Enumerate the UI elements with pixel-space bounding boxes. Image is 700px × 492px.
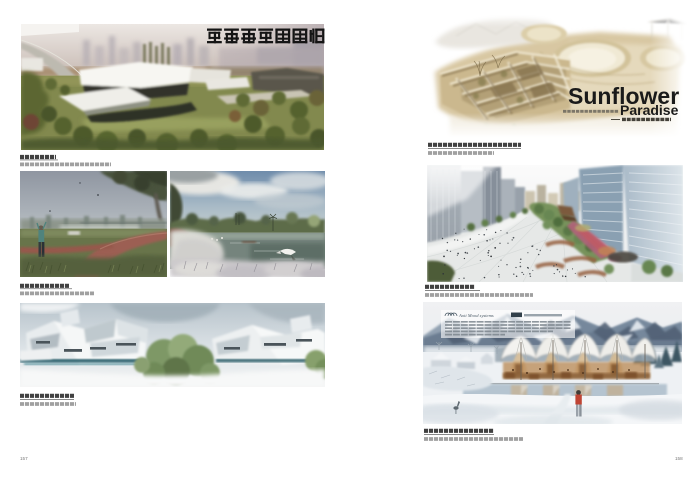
svg-text:Aoti Mood systems: Aoti Mood systems bbox=[458, 313, 494, 318]
